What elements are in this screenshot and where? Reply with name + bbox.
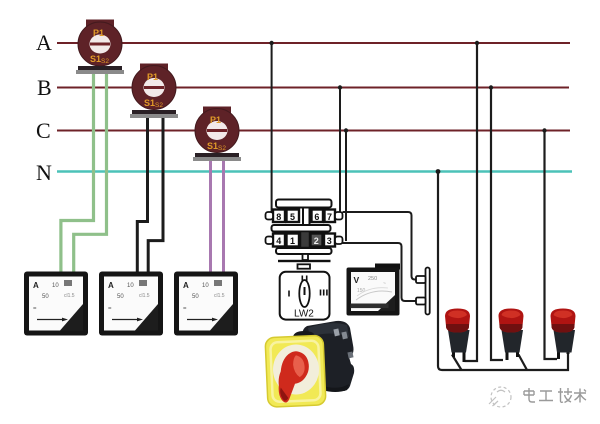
- svg-text:7: 7: [327, 212, 332, 222]
- svg-text:50: 50: [192, 294, 199, 300]
- svg-text:P1: P1: [147, 72, 158, 82]
- svg-text:C: C: [36, 118, 51, 143]
- svg-text:cl1.5: cl1.5: [139, 293, 150, 299]
- svg-text:A: A: [33, 281, 39, 290]
- svg-text:cl1.5: cl1.5: [64, 293, 75, 299]
- svg-text:4: 4: [276, 236, 281, 246]
- svg-text:A: A: [36, 30, 52, 55]
- svg-text:=: =: [108, 306, 112, 312]
- svg-text:S2: S2: [218, 145, 226, 152]
- svg-text:250: 250: [368, 276, 377, 282]
- svg-text:P1: P1: [93, 28, 104, 38]
- svg-text:A: A: [108, 281, 114, 290]
- svg-text:S2: S2: [155, 102, 163, 109]
- svg-text:N: N: [36, 160, 52, 185]
- svg-text:B: B: [37, 75, 52, 100]
- svg-text:50: 50: [42, 294, 49, 300]
- svg-text:A: A: [183, 281, 189, 290]
- svg-text:5: 5: [290, 212, 295, 222]
- svg-text:S2: S2: [101, 58, 109, 65]
- svg-text:=: =: [33, 306, 37, 312]
- svg-text:1: 1: [290, 236, 295, 246]
- svg-text:6: 6: [314, 212, 319, 222]
- svg-text:50: 50: [117, 294, 124, 300]
- svg-text:10: 10: [127, 283, 134, 289]
- svg-text:S1: S1: [144, 98, 155, 108]
- svg-text:8: 8: [276, 212, 281, 222]
- svg-text:V: V: [354, 275, 360, 285]
- svg-text:S1: S1: [90, 54, 101, 64]
- svg-text:2: 2: [314, 236, 319, 246]
- svg-text:LW2: LW2: [294, 309, 314, 320]
- svg-text:=: =: [183, 306, 187, 312]
- svg-text:3: 3: [327, 236, 332, 246]
- svg-text:10: 10: [52, 283, 59, 289]
- svg-text:S1: S1: [207, 141, 218, 151]
- svg-text:cl1.5: cl1.5: [214, 293, 225, 299]
- svg-text:P1: P1: [210, 115, 221, 125]
- svg-text:~: ~: [383, 281, 386, 287]
- svg-text:10: 10: [202, 283, 209, 289]
